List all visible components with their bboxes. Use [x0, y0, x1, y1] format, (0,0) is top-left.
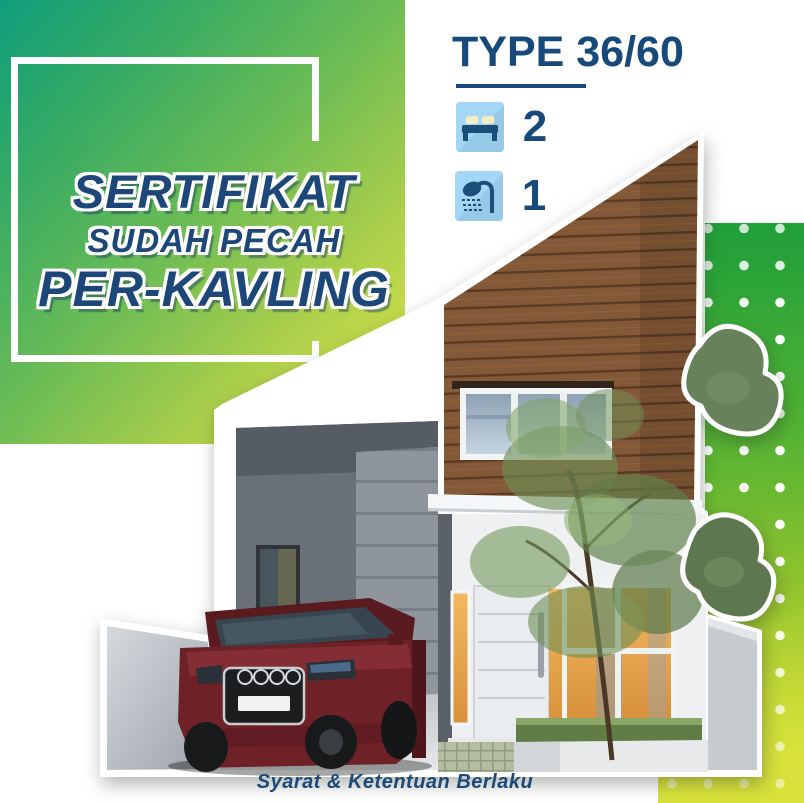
right-fence-wall	[708, 618, 757, 770]
flyer-canvas: SERTIFIKAT SUDAH PECAH PER-KAVLING TYPE …	[0, 0, 804, 803]
car	[168, 598, 432, 776]
bed-icon	[456, 102, 504, 152]
carport-window	[256, 545, 300, 613]
shower-icon	[455, 171, 503, 221]
pavement	[438, 742, 518, 772]
footer-note: Syarat & Ketentuan Berlaku	[0, 771, 790, 794]
house-render	[0, 0, 804, 803]
